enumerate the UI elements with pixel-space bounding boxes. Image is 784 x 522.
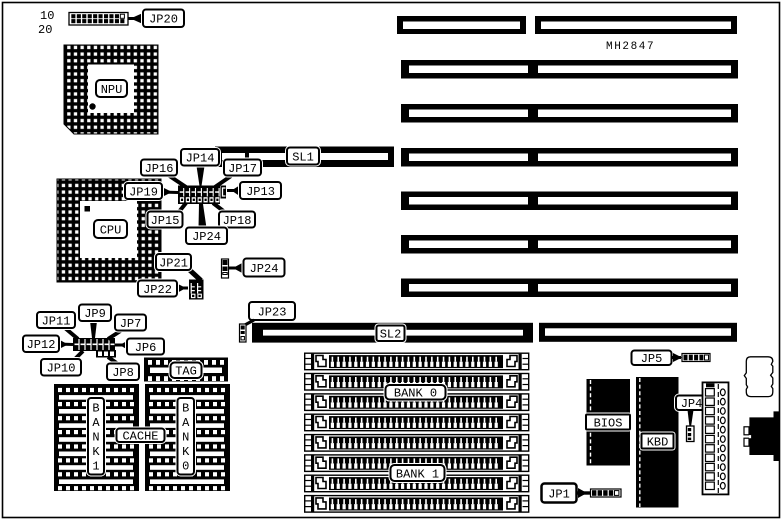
svg-text:N: N [92,431,99,445]
svg-text:SL1: SL1 [292,150,314,164]
svg-text:JP4: JP4 [681,397,703,411]
svg-text:K: K [182,445,190,459]
svg-text:JP20: JP20 [149,13,178,27]
svg-text:JP5: JP5 [641,352,663,366]
svg-text:CPU: CPU [100,223,122,237]
svg-text:JP12: JP12 [27,338,56,352]
svg-text:10: 10 [40,9,54,23]
svg-text:BANK 0: BANK 0 [394,387,437,401]
svg-text:TAG: TAG [175,365,197,379]
svg-text:MH2847: MH2847 [606,41,655,53]
svg-text:A: A [182,416,190,430]
svg-text:20: 20 [38,23,52,37]
svg-text:N: N [182,431,189,445]
svg-text:JP11: JP11 [42,314,71,328]
svg-text:JP14: JP14 [186,152,215,166]
svg-text:JP6: JP6 [135,341,157,355]
svg-text:JP15: JP15 [151,214,180,228]
svg-text:JP17: JP17 [228,162,257,176]
svg-text:JP9: JP9 [84,307,106,321]
svg-text:JP18: JP18 [223,214,252,228]
svg-text:A: A [92,416,100,430]
svg-text:B: B [182,402,189,416]
svg-text:JP19: JP19 [129,185,158,199]
svg-text:NPU: NPU [101,83,123,97]
svg-text:JP23: JP23 [258,305,287,319]
svg-text:JP16: JP16 [145,162,174,176]
svg-text:CACHE: CACHE [122,430,158,444]
svg-text:JP7: JP7 [120,317,142,331]
svg-text:BIOS: BIOS [594,416,623,430]
svg-text:0: 0 [182,460,189,474]
svg-text:1: 1 [92,460,99,474]
svg-text:JP24: JP24 [250,262,279,276]
svg-text:B: B [92,402,99,416]
svg-text:SL2: SL2 [380,328,402,342]
svg-text:JP21: JP21 [159,256,188,270]
svg-text:JP1: JP1 [548,487,570,501]
svg-text:JP8: JP8 [112,366,134,380]
svg-text:JP24: JP24 [192,230,221,244]
svg-text:JP22: JP22 [143,283,172,297]
svg-text:JP13: JP13 [246,185,275,199]
svg-text:KBD: KBD [647,435,669,449]
svg-text:K: K [92,445,100,459]
svg-text:BANK 1: BANK 1 [396,467,439,481]
svg-text:JP10: JP10 [47,362,76,376]
